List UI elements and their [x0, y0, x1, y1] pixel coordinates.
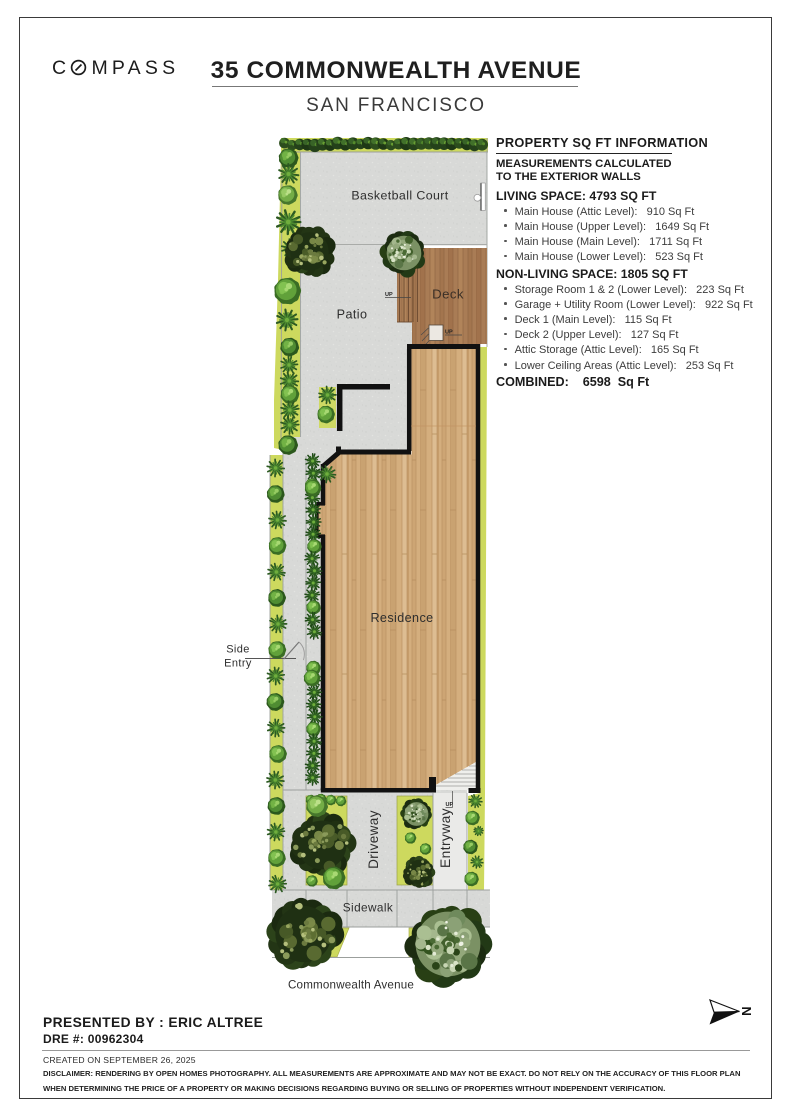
svg-text:UP: UP: [445, 330, 453, 336]
svg-text:Entryway: Entryway: [438, 808, 453, 868]
svg-text:Sidewalk: Sidewalk: [343, 901, 393, 915]
svg-text:Entry: Entry: [224, 658, 252, 670]
svg-text:Basketball Court: Basketball Court: [351, 189, 448, 203]
svg-text:Residence: Residence: [370, 611, 433, 625]
svg-text:Commonwealth Avenue: Commonwealth Avenue: [288, 979, 414, 992]
svg-text:Deck: Deck: [432, 287, 464, 302]
svg-text:Driveway: Driveway: [366, 810, 381, 869]
svg-text:Side: Side: [226, 644, 250, 656]
svg-text:N: N: [739, 1007, 754, 1016]
svg-text:UP: UP: [385, 292, 393, 298]
svg-text:Patio: Patio: [337, 308, 368, 322]
